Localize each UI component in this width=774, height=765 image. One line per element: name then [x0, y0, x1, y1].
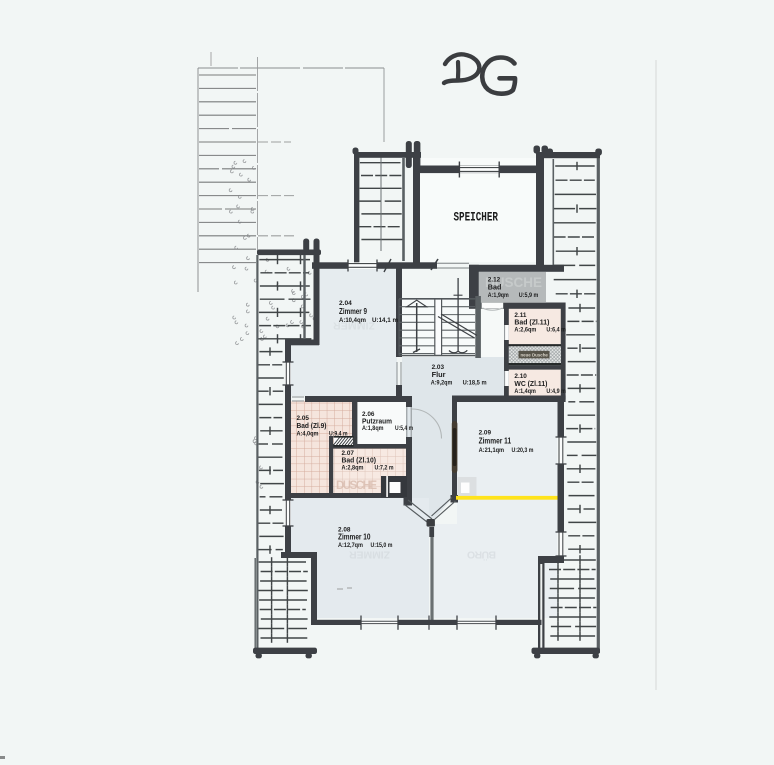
svg-text:Bad (Zl.11): Bad (Zl.11)	[514, 318, 550, 327]
svg-text:U:5,4 m: U:5,4 m	[395, 425, 413, 432]
svg-text:Bad: Bad	[488, 282, 502, 291]
svg-text:Bad (Zl.10): Bad (Zl.10)	[342, 456, 377, 465]
svg-text:Bad (Zl.9): Bad (Zl.9)	[297, 421, 328, 430]
svg-text:Putzraum: Putzraum	[362, 416, 392, 425]
svg-text:U:4,9 m: U:4,9 m	[546, 388, 566, 395]
svg-text:ZIMMER: ZIMMER	[347, 549, 390, 561]
svg-text:2.04: 2.04	[339, 300, 352, 307]
svg-text:SPEICHER: SPEICHER	[454, 211, 499, 225]
svg-text:A:2,6qm: A:2,6qm	[514, 327, 536, 334]
svg-text:A:12,7qm: A:12,7qm	[338, 542, 363, 549]
svg-text:U:14,1 m: U:14,1 m	[372, 317, 398, 324]
svg-text:Zimmer 9: Zimmer 9	[339, 307, 367, 316]
svg-text:neue Dusche: neue Dusche	[521, 352, 549, 357]
svg-text:A:4,0qm: A:4,0qm	[297, 430, 319, 437]
svg-text:U:6,4 m: U:6,4 m	[546, 327, 566, 334]
svg-text:A:1,4qm: A:1,4qm	[514, 388, 536, 395]
svg-text:Zimmer 10: Zimmer 10	[338, 533, 371, 542]
svg-text:U:18,5 m: U:18,5 m	[463, 379, 487, 386]
svg-text:2.09: 2.09	[479, 429, 492, 436]
svg-text:U:15,0 m: U:15,0 m	[371, 542, 393, 549]
svg-text:U:9,4 m: U:9,4 m	[329, 430, 348, 437]
svg-text:A:1,9qm: A:1,9qm	[488, 292, 509, 299]
svg-text:Flur: Flur	[432, 370, 446, 379]
svg-text:A:9,2qm: A:9,2qm	[431, 379, 453, 386]
svg-text:U:20,3 m: U:20,3 m	[512, 447, 534, 454]
svg-text:A:2,8qm: A:2,8qm	[342, 464, 364, 471]
svg-text:A:21,1qm: A:21,1qm	[479, 447, 505, 454]
svg-text:U:7,2 m: U:7,2 m	[375, 464, 394, 471]
svg-text:BÜRO: BÜRO	[466, 549, 496, 562]
svg-text:WC (Zl.11): WC (Zl.11)	[514, 379, 548, 388]
svg-text:U:5,9 m: U:5,9 m	[519, 292, 539, 299]
svg-text:Zimmer 11: Zimmer 11	[479, 436, 512, 445]
svg-text:DUSCHE: DUSCHE	[336, 480, 378, 492]
svg-text:A:10,4qm: A:10,4qm	[339, 317, 366, 324]
svg-text:A:1,8qm: A:1,8qm	[362, 425, 384, 432]
